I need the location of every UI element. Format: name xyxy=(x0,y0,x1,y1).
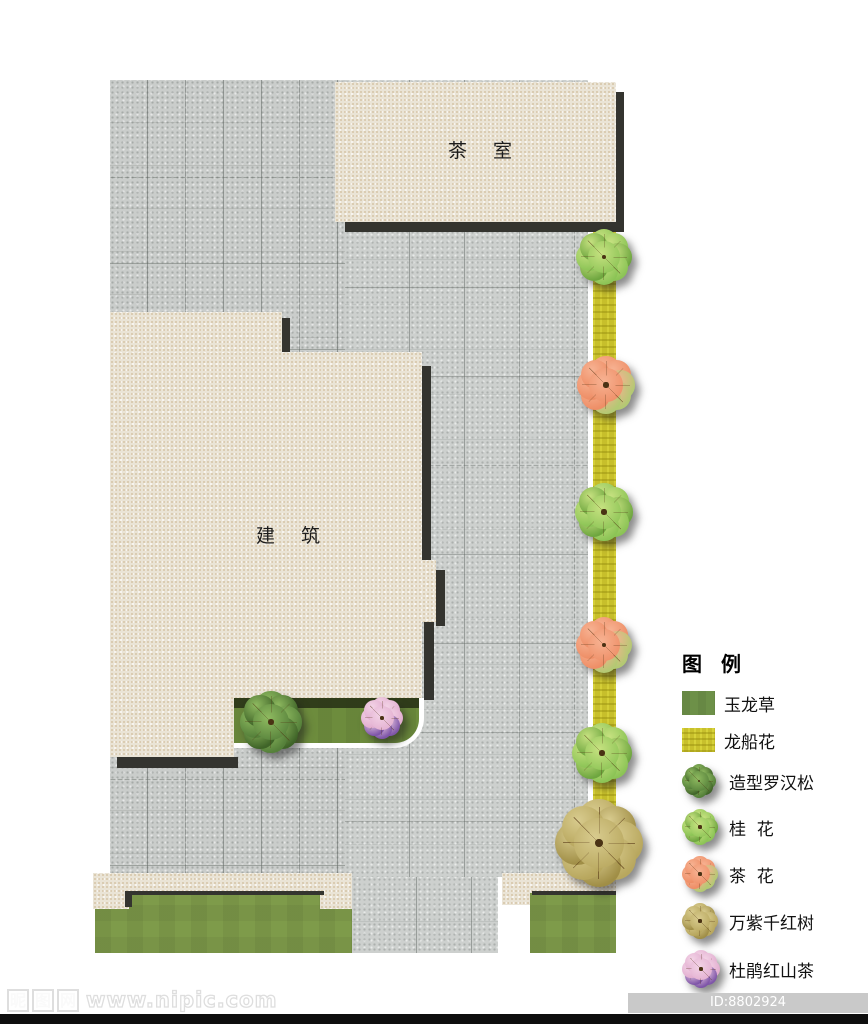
tea-room-shadow-right xyxy=(616,92,624,232)
legend-label-guihua: 桂 花 xyxy=(729,815,774,840)
site-watermark: 昵图网 www.nipic.com xyxy=(7,988,277,1012)
legend-row-grass: 玉龙草 xyxy=(682,690,862,716)
building-right-step xyxy=(422,560,436,622)
wanzi-tree-icon xyxy=(682,903,720,939)
building-label: 建 筑 xyxy=(219,521,359,548)
tea-room-label: 茶 室 xyxy=(411,136,551,163)
site-logo: 昵图网 xyxy=(7,989,82,1012)
legend-label-luohansong: 造型罗汉松 xyxy=(729,769,814,794)
ixora-swatch xyxy=(682,728,715,752)
dujuan-tree-symbol xyxy=(683,951,719,987)
legend-label-ixora: 龙船花 xyxy=(724,728,775,753)
legend-title: 图 例 xyxy=(682,648,862,677)
legend-row-dujuan: 杜鹃红山茶 xyxy=(682,950,862,988)
grass-swatch xyxy=(682,691,715,715)
legend-row-guihua: 桂 花 xyxy=(682,809,862,845)
luohansong-tree-symbol xyxy=(683,765,715,797)
building-shadow-bottom xyxy=(117,757,238,768)
curb-bottom-right-leg xyxy=(502,873,530,905)
building-upper-step xyxy=(110,312,282,353)
ixora-hedge-strip xyxy=(593,222,616,873)
legend-row-wanzi: 万紫千红树 xyxy=(682,903,862,939)
curb-bottom-left-run xyxy=(125,873,325,893)
site-logo-char: 图 xyxy=(32,989,54,1012)
building-shadow-right-step xyxy=(436,570,445,626)
dujuan-tree-icon xyxy=(682,950,720,988)
site-url-text: www.nipic.com xyxy=(86,988,277,1012)
landscape-plan-canvas: 茶 室 建 筑 图 例 玉龙草 龙船花 造型罗汉松 xyxy=(0,0,868,1024)
legend-label-chahua: 茶 花 xyxy=(729,862,774,887)
chahua-tree-symbol xyxy=(683,857,717,891)
building-shadow-right-upper xyxy=(422,366,431,566)
legend-row-luohansong: 造型罗汉松 xyxy=(682,764,862,798)
guihua-tree-icon xyxy=(682,809,720,845)
lawn-bottom-right xyxy=(530,888,616,953)
legend-row-ixora: 龙船花 xyxy=(682,727,862,753)
site-logo-char: 昵 xyxy=(7,989,29,1012)
legend-label-dujuan: 杜鹃红山茶 xyxy=(729,957,814,982)
legend-label-grass: 玉龙草 xyxy=(724,691,775,716)
planting-strip-outline xyxy=(234,698,424,748)
pavement-bottom-walk xyxy=(352,877,498,953)
footer-black-bar xyxy=(0,1014,868,1024)
curb-bottom-right-end xyxy=(320,873,352,909)
curb-shadow-line-left xyxy=(132,891,324,895)
legend: 图 例 玉龙草 龙船花 造型罗汉松 桂 花 茶 花 万紫千红树 杜鹃红山茶 xyxy=(682,648,862,999)
building-lower-leg xyxy=(110,700,234,757)
legend-row-chahua: 茶 花 xyxy=(682,856,862,892)
legend-label-wanzi: 万紫千红树 xyxy=(729,909,814,934)
curb-shadow-corner-left xyxy=(125,891,132,907)
planting-strip-lawn xyxy=(234,698,419,743)
tea-room-shadow-bottom xyxy=(345,222,624,232)
lawn-bottom-left xyxy=(95,888,352,953)
guihua-tree-symbol xyxy=(683,810,717,844)
building-shadow-right-lower xyxy=(424,622,434,700)
wanzi-tree-symbol xyxy=(683,904,717,938)
curb-bottom-left-end xyxy=(93,873,129,909)
luohansong-tree-icon xyxy=(682,764,720,798)
curb-shadow-line-right xyxy=(532,891,616,895)
chahua-tree-icon xyxy=(682,856,720,892)
site-logo-char: 网 xyxy=(57,989,79,1012)
image-id-badge: ID:8802924 NO:20200108184940124084 xyxy=(628,993,868,1013)
